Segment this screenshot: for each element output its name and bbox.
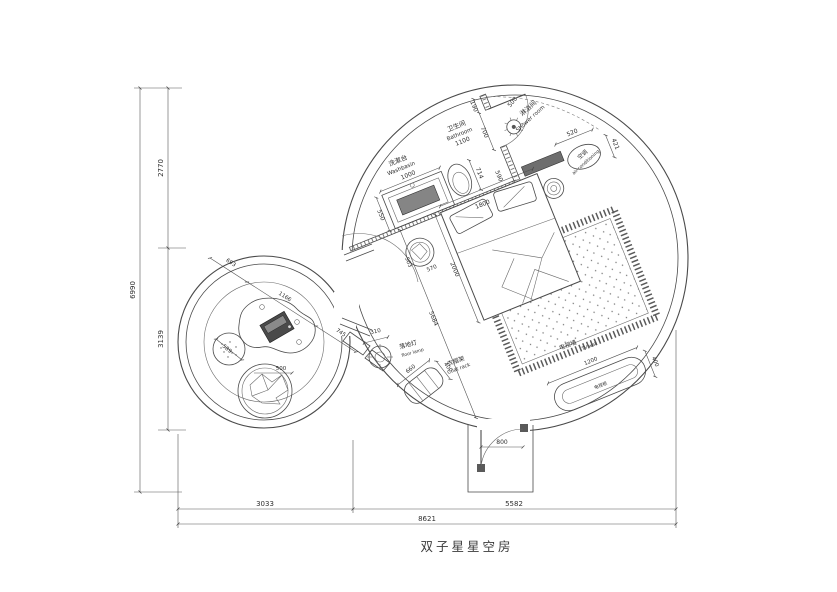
dim-left-total: 6990 <box>129 281 137 299</box>
desk-grommet <box>297 340 302 345</box>
floor-lamp <box>367 344 393 370</box>
dim-lamp: 310 <box>370 328 382 336</box>
bottom-dimensions: 3033 5582 8621 <box>178 330 676 528</box>
lamp-label-cn: 落地灯 <box>398 338 418 351</box>
dim-entry-door: 800 <box>496 439 508 446</box>
shower-bench <box>521 151 564 176</box>
left-dimensions: 2770 3139 6990 <box>129 88 186 492</box>
air-conditioner: 空调 air-conditioning <box>563 140 605 178</box>
tv-wall-label-en: TV wall <box>580 341 598 353</box>
dim-ac-width: 520 <box>566 127 579 138</box>
dim-coat-length: 660 <box>405 364 417 375</box>
blanket <box>250 374 288 404</box>
entry-door-swing-arc <box>481 429 523 466</box>
plan-title: 双子星星空房 <box>420 539 513 554</box>
dim-tv-length: 1200 <box>583 356 599 367</box>
entry-vestibule: 800 <box>468 424 533 492</box>
dim-left-bottom: 3139 <box>157 330 165 348</box>
dim-left-top: 2770 <box>157 159 165 177</box>
dim-room-length: 5684 <box>427 310 439 327</box>
dim-bottom-total: 8621 <box>418 515 436 523</box>
dim-lounge-b: 1166 <box>277 291 292 304</box>
lounge-interior: 589 500 693 1166 745 <box>210 258 356 418</box>
dim-door-side: 190 <box>468 100 479 113</box>
dim-side-table-2: 570 <box>426 264 438 274</box>
floor-plan-page: 2770 3139 6990 3033 5582 8621 <box>0 0 837 592</box>
dim-lounge-chair: 500 <box>276 366 287 372</box>
door-hinge-post <box>520 424 528 432</box>
small-room-circle <box>178 256 350 428</box>
tv-cabinet-label: 电视柜 <box>593 379 609 391</box>
desk-grommet <box>295 320 300 325</box>
desk-grommet <box>260 305 265 310</box>
dim-bath-door: 700 <box>479 126 490 139</box>
wall-wedge <box>343 332 370 355</box>
dim-bottom-left: 3033 <box>256 500 274 508</box>
dim-lounge-a: 693 <box>225 258 237 269</box>
laptop <box>260 311 294 342</box>
floor-plan-canvas: 2770 3139 6990 3033 5582 8621 <box>0 0 837 592</box>
dim-toilet: 714 <box>474 167 485 180</box>
dim-bed-length: 2000 <box>448 261 460 278</box>
dim-washbasin-depth: 550 <box>375 209 386 222</box>
dim-bottom-right: 5582 <box>505 500 523 508</box>
dim-pouf: 589 <box>221 344 233 356</box>
